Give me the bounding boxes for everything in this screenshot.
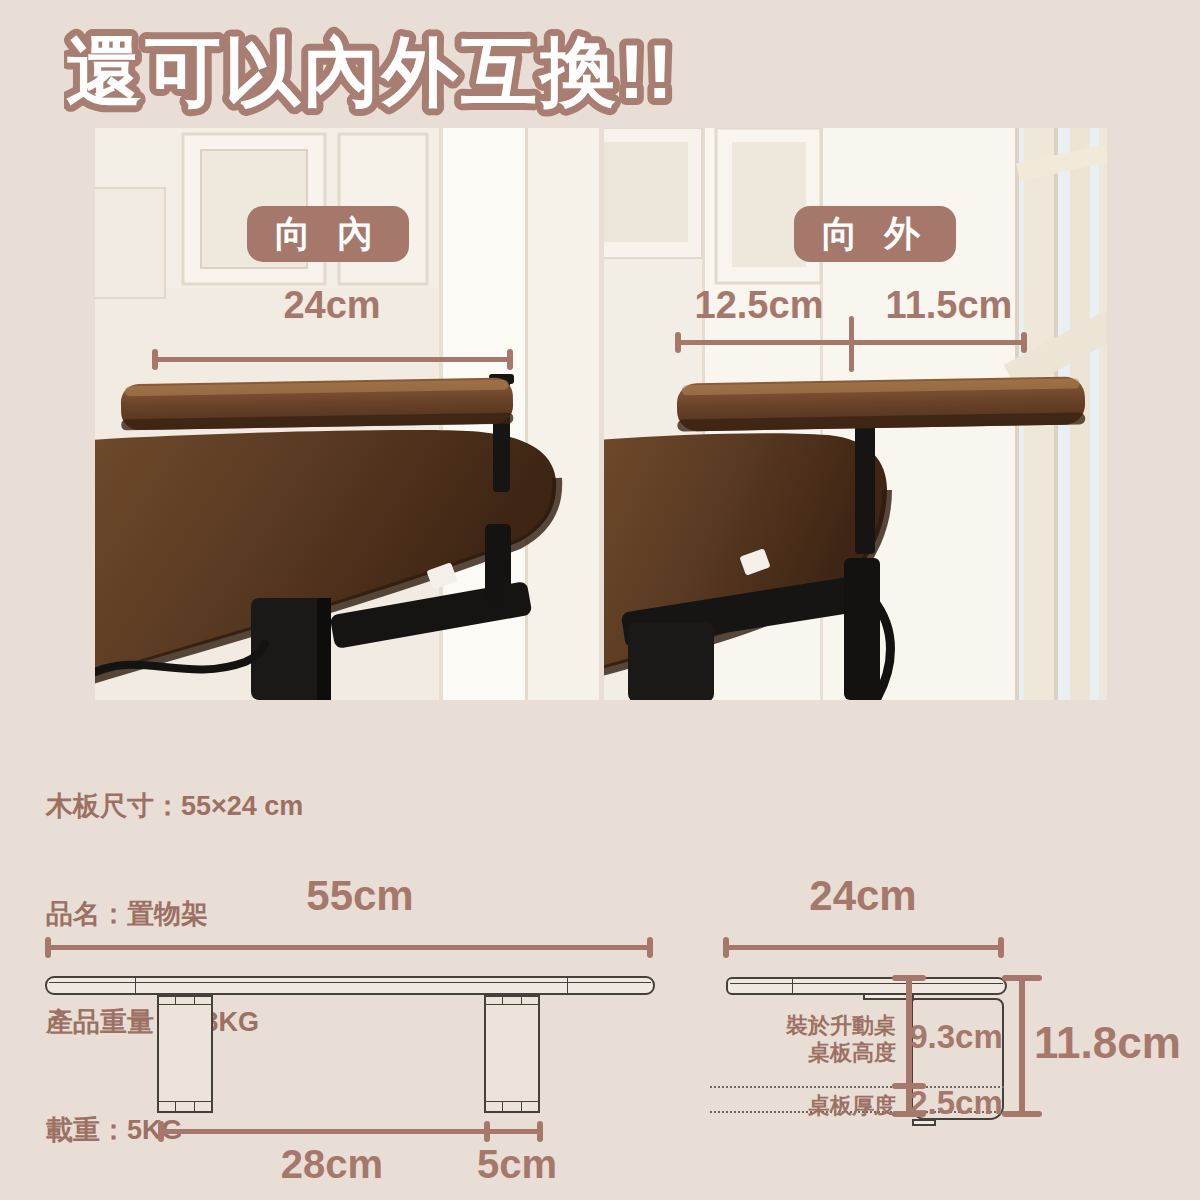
inward-label: 向 內 bbox=[275, 210, 381, 259]
side-total-line bbox=[1019, 977, 1025, 1117]
right-leg-notch-3 bbox=[502, 1101, 503, 1111]
inward-label-pill: 向 內 bbox=[247, 206, 409, 262]
inward-dim-tick-right bbox=[507, 349, 513, 370]
front-board-seam-left bbox=[135, 978, 136, 993]
side-depth-line bbox=[726, 945, 1002, 950]
left-leg-notch-4 bbox=[194, 1101, 195, 1111]
side-total-tick-bottom bbox=[1002, 1111, 1042, 1117]
photo-shelf-outward: 向 外 12.5cm 11.5cm bbox=[604, 128, 1107, 700]
front-bottom-tick-left bbox=[158, 1121, 164, 1142]
spec-board-size: 木板尺寸：55×24 cm bbox=[46, 788, 303, 824]
right-leg-top-plate bbox=[486, 1004, 538, 1005]
mount-height-label-line1: 裝於升動桌 bbox=[700, 1012, 896, 1039]
right-leg-notch-4 bbox=[521, 1101, 522, 1111]
inward-dim-tick-left bbox=[152, 349, 158, 370]
front-view-right-leg bbox=[484, 995, 540, 1113]
outward-dim-tick-center bbox=[849, 316, 854, 372]
mount-height-label-line2: 桌板高度 bbox=[700, 1039, 896, 1066]
outward-dim-tick-right bbox=[1021, 332, 1027, 353]
side-depth-tick-right bbox=[998, 937, 1004, 958]
outward-label-pill: 向 外 bbox=[794, 206, 956, 262]
right-leg-bottom-plate bbox=[486, 1101, 538, 1102]
front-width-tick-left bbox=[45, 937, 51, 958]
side-height-tick-top bbox=[892, 975, 926, 981]
total-height-value: 11.8cm bbox=[1034, 1018, 1194, 1068]
inward-dim-label: 24cm bbox=[252, 284, 412, 327]
front-view-board bbox=[45, 976, 655, 995]
outward-dim-right-label: 11.5cm bbox=[869, 284, 1029, 327]
left-leg-top-plate bbox=[159, 1004, 211, 1005]
mount-height-label: 裝於升動桌 桌板高度 bbox=[700, 1012, 896, 1066]
photo-shelf-inward: 向 內 24cm bbox=[95, 128, 599, 700]
title-banner: 還可以內外互換!! bbox=[64, 12, 784, 124]
board-thickness-value: 2.5cm bbox=[908, 1084, 1004, 1122]
mount-height-value: 9.3cm bbox=[908, 1018, 1004, 1056]
product-infographic: 還可以內外互換!! bbox=[0, 0, 1200, 1200]
side-board-seam bbox=[792, 979, 793, 993]
front-board-edge-line bbox=[49, 982, 651, 983]
outward-dim-left-label: 12.5cm bbox=[679, 284, 839, 327]
left-leg-bottom-plate bbox=[159, 1101, 211, 1102]
left-leg-notch-1 bbox=[175, 997, 176, 1005]
right-leg-notch-2 bbox=[521, 997, 522, 1005]
side-depth-tick-left bbox=[723, 937, 729, 958]
front-bottom-tick-right bbox=[537, 1121, 543, 1142]
board-thickness-label: 桌板厚度 bbox=[700, 1092, 896, 1119]
left-leg-notch-3 bbox=[175, 1101, 176, 1111]
page-title: 還可以內外互換!! bbox=[66, 29, 676, 114]
front-leg-width-label: 5cm bbox=[462, 1142, 572, 1187]
left-leg-notch-2 bbox=[194, 997, 195, 1005]
front-width-label: 55cm bbox=[280, 872, 440, 920]
inward-dim-line bbox=[155, 357, 511, 362]
spec-list: 木板尺寸：55×24 cm 品名：置物架 產品重量：2.3KG 載重：5KG 材… bbox=[46, 716, 303, 1200]
front-leg-span-label: 28cm bbox=[252, 1142, 412, 1187]
side-depth-label: 24cm bbox=[783, 872, 943, 920]
right-leg-notch-1 bbox=[502, 997, 503, 1005]
outward-dim-tick-left bbox=[675, 332, 681, 353]
side-total-tick-top bbox=[1002, 975, 1042, 981]
side-board-edge-line bbox=[730, 983, 1003, 984]
front-width-line bbox=[48, 945, 650, 950]
front-bottom-line bbox=[160, 1129, 540, 1134]
outward-label: 向 外 bbox=[822, 210, 928, 259]
front-board-seam-right bbox=[567, 978, 568, 993]
front-bottom-tick-mid bbox=[484, 1121, 490, 1142]
front-view-left-leg bbox=[157, 995, 213, 1113]
front-width-tick-right bbox=[647, 937, 653, 958]
spec-product-name: 品名：置物架 bbox=[46, 896, 303, 932]
